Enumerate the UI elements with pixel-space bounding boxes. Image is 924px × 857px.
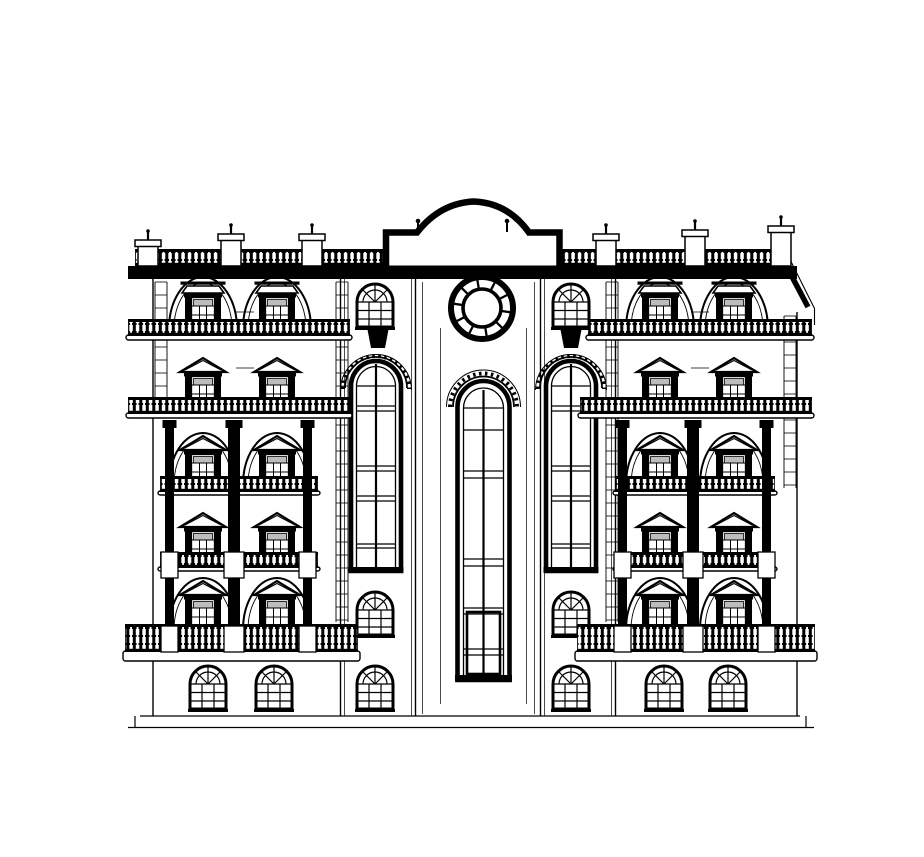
rosette-window xyxy=(449,275,514,340)
parapet-left xyxy=(135,249,385,266)
balcony-pedestal-block xyxy=(161,552,178,578)
balcony-pedestal-block xyxy=(683,626,703,652)
fanlight-window xyxy=(188,666,228,712)
balcony-pedestal-block xyxy=(683,552,703,578)
parapet-pedestal xyxy=(218,223,244,266)
fanlight-window xyxy=(708,666,748,712)
parapet-pedestal xyxy=(593,223,619,266)
tall-arched-window xyxy=(536,355,607,573)
balcony-pedestal-block xyxy=(299,552,316,578)
central-arched-window xyxy=(447,370,521,682)
balcony-r3 xyxy=(578,397,814,418)
architectural-elevation: Classical building facade - front elevat… xyxy=(40,16,924,841)
balcony-pedestal-block xyxy=(161,626,178,652)
base-plinth xyxy=(128,716,814,728)
elevation-drawing: Classical building facade - front elevat… xyxy=(40,16,924,841)
pilaster xyxy=(618,420,627,628)
balcony-l3 xyxy=(126,397,352,418)
balcony-l2 xyxy=(126,319,352,340)
balcony-pedestal-block xyxy=(614,626,631,652)
pilaster xyxy=(165,420,174,628)
parapet-pedestal xyxy=(682,219,708,266)
balcony-pedestal-block xyxy=(224,552,244,578)
pilaster xyxy=(303,420,312,628)
fanlight-window xyxy=(355,284,395,330)
parapet-pedestal xyxy=(135,229,161,266)
balcony-pedestal-block xyxy=(299,626,316,652)
fanlight-window xyxy=(355,592,395,638)
fanlight-window xyxy=(644,666,684,712)
balcony-pedestal-block xyxy=(758,552,775,578)
tall-arched-window xyxy=(341,355,412,573)
central-parapet-base xyxy=(380,266,568,280)
balcony-pedestal-block xyxy=(614,552,631,578)
pilaster xyxy=(687,420,699,628)
balcony-pedestal-block xyxy=(224,626,244,652)
parapet-right xyxy=(560,249,791,266)
central-arched-parapet xyxy=(386,202,560,274)
balcony-r2 xyxy=(586,319,814,340)
parapet-pedestal xyxy=(768,215,794,266)
cornice-band-left xyxy=(128,266,386,279)
balcony-pedestal-block xyxy=(758,626,775,652)
fanlight-window xyxy=(355,666,395,712)
pilaster xyxy=(228,420,240,628)
pilaster xyxy=(762,420,771,628)
fanlight-window xyxy=(254,666,294,712)
cornice-band-right xyxy=(556,266,797,279)
fanlight-window xyxy=(551,284,591,330)
fanlight-window xyxy=(551,666,591,712)
parapet-pedestal xyxy=(299,223,325,266)
